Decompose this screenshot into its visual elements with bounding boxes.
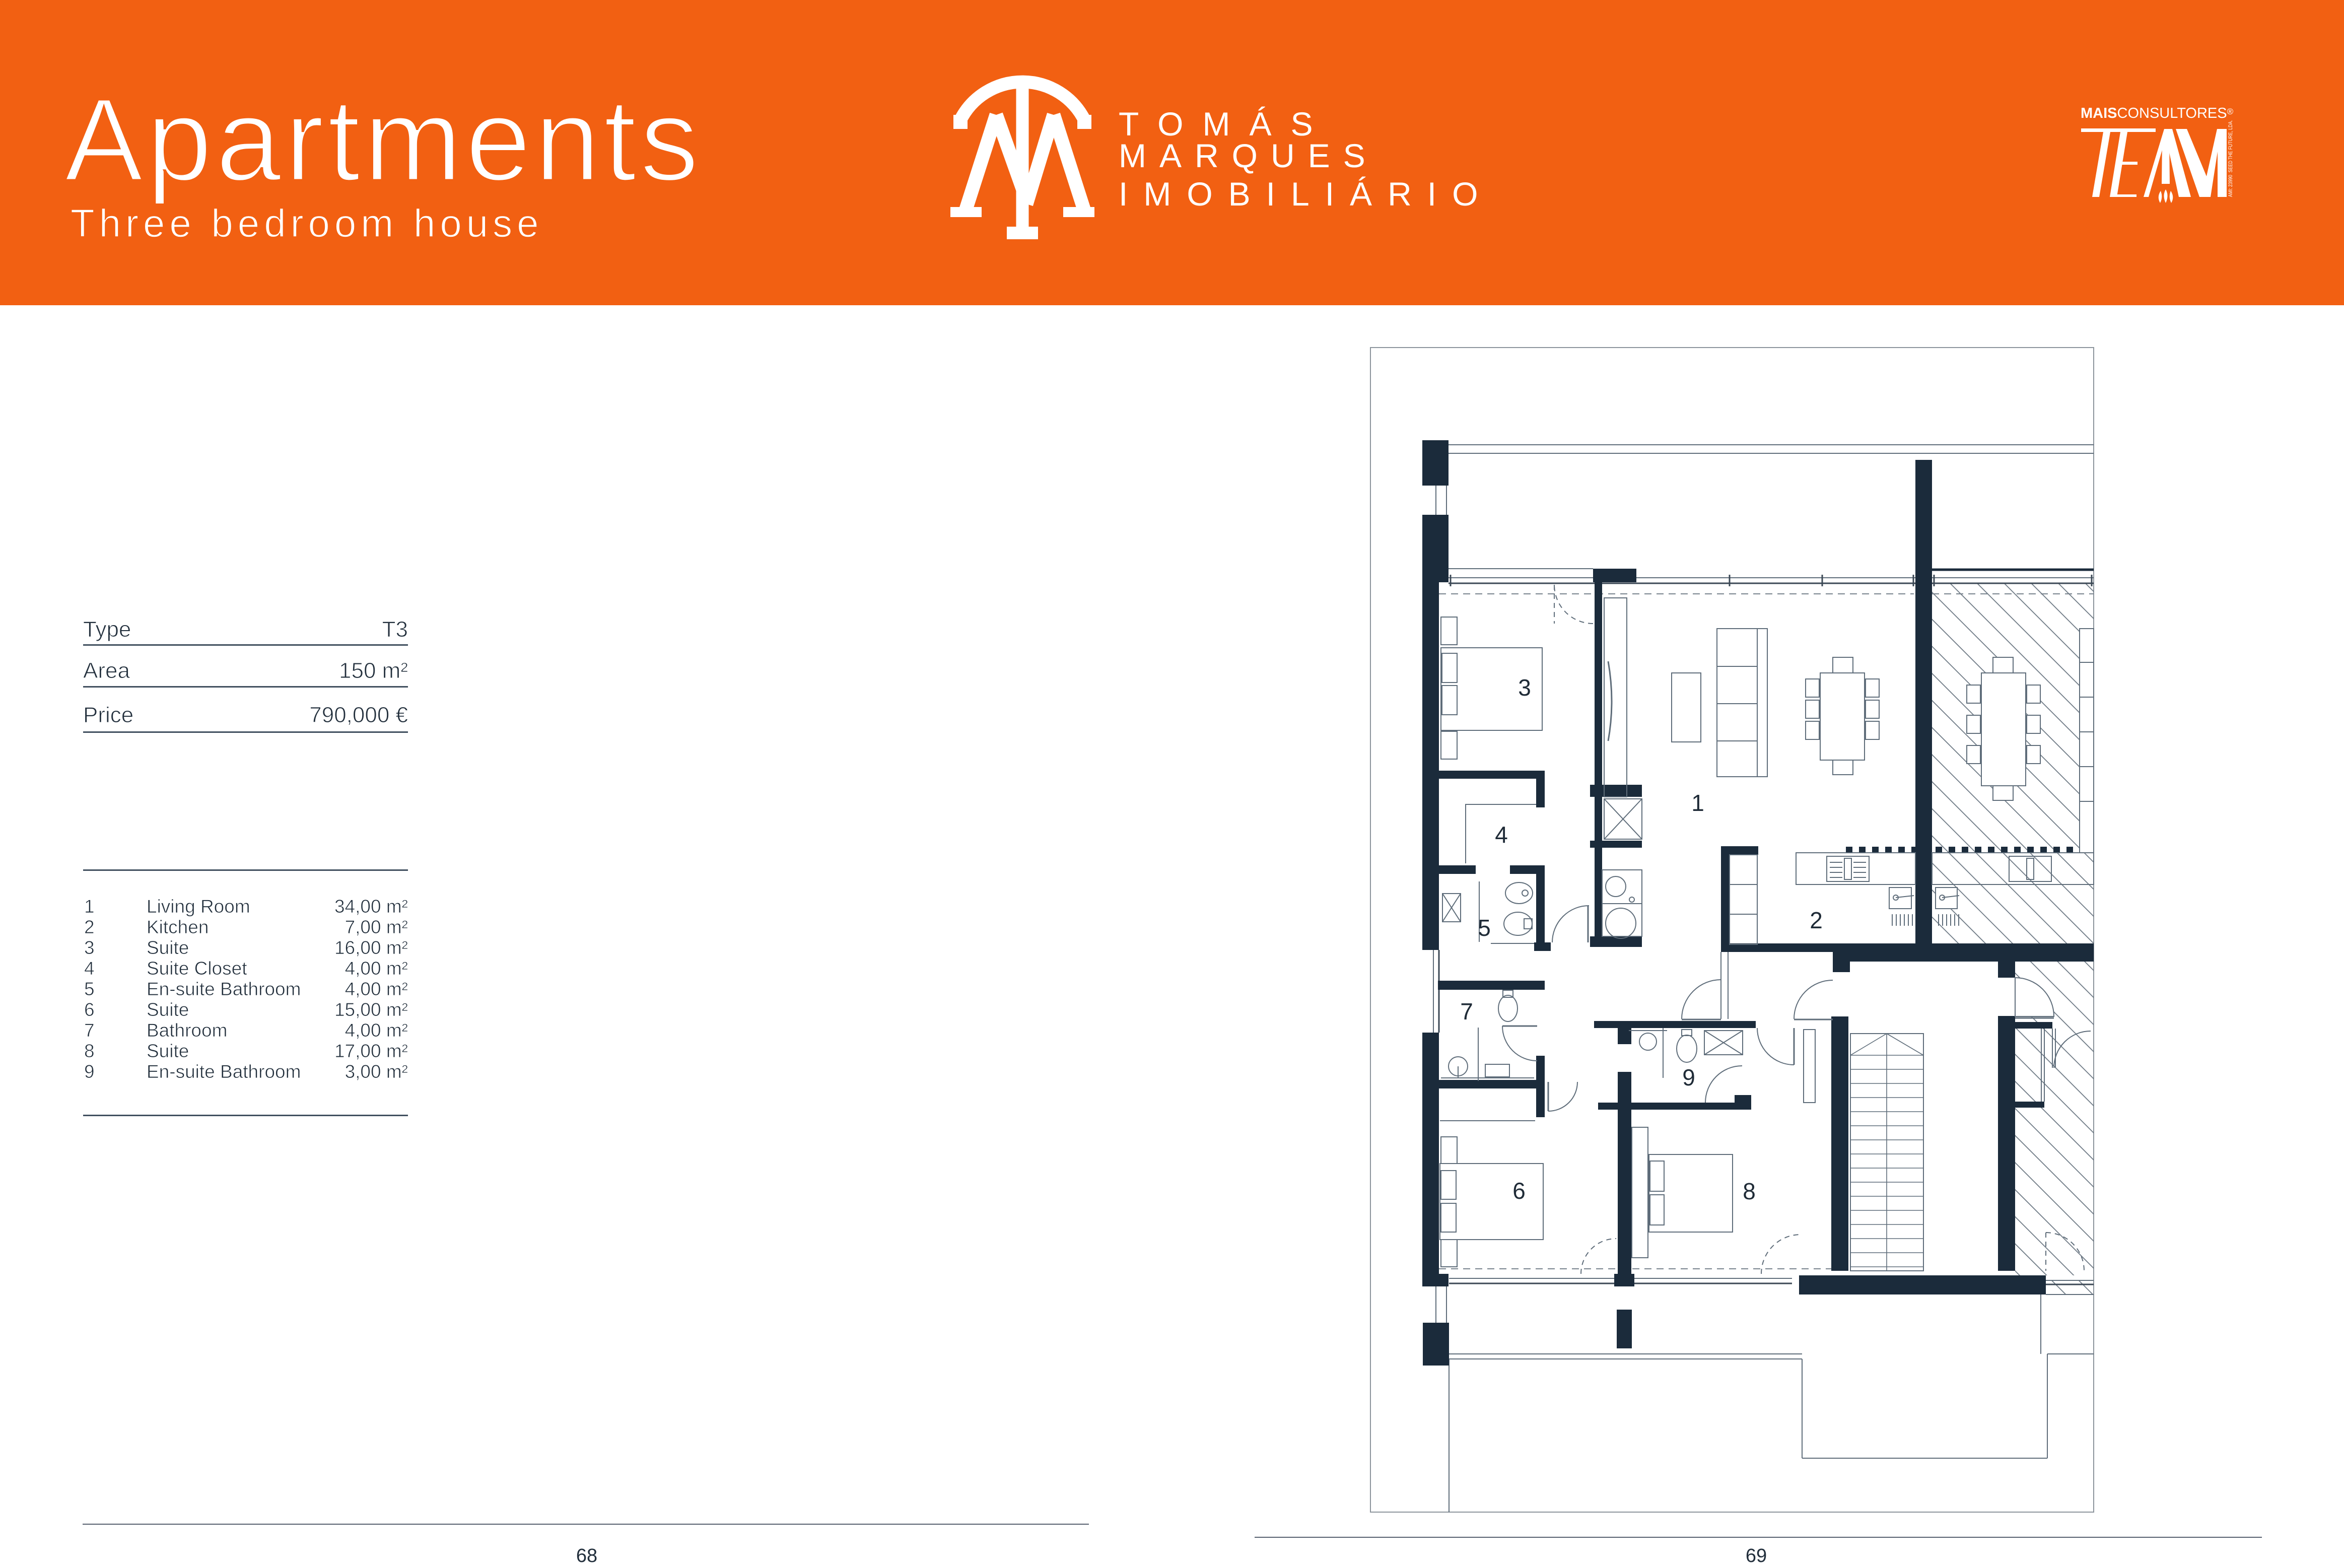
svg-text:2: 2 — [1810, 907, 1823, 933]
svg-text:3: 3 — [1518, 674, 1531, 701]
svg-text:9: 9 — [1682, 1064, 1695, 1090]
svg-text:8: 8 — [1743, 1178, 1756, 1204]
svg-text:1: 1 — [1691, 790, 1704, 816]
svg-text:7: 7 — [1460, 998, 1473, 1025]
svg-text:6: 6 — [1512, 1178, 1526, 1204]
svg-text:4: 4 — [1495, 822, 1508, 848]
svg-text:5: 5 — [1478, 915, 1491, 941]
